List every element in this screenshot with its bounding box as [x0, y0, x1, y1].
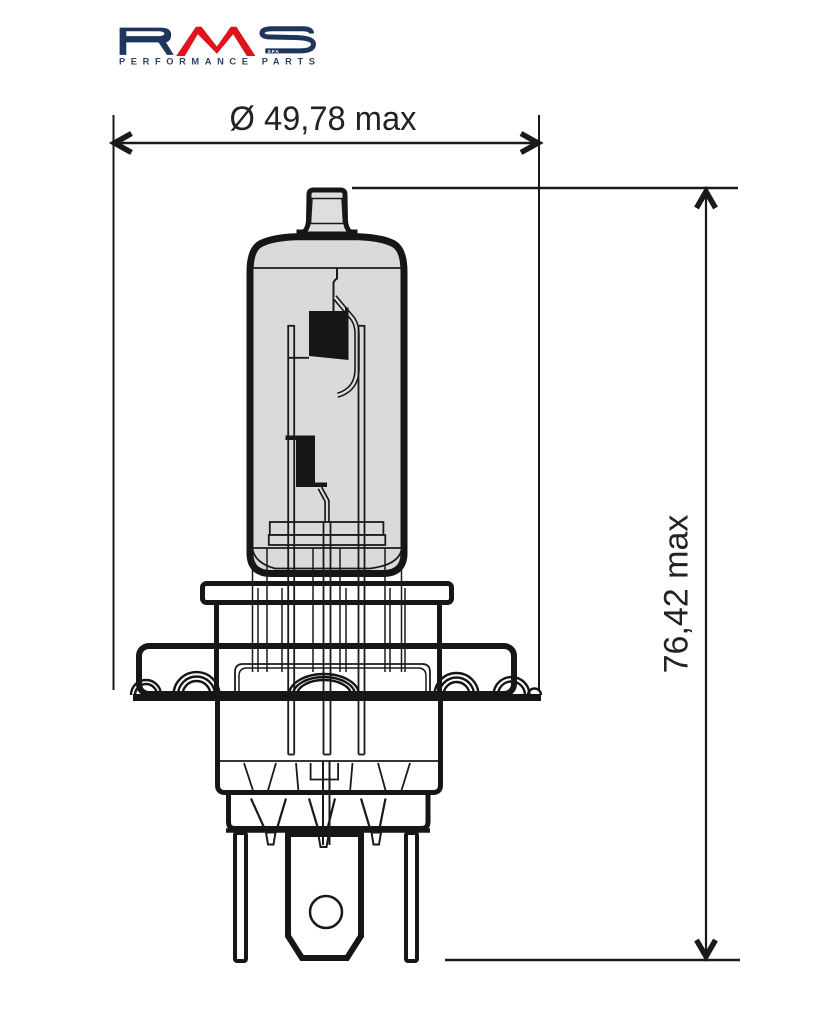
- svg-text:PERFORMANCE PARTS: PERFORMANCE PARTS: [119, 57, 315, 67]
- svg-text:Ø 49,78 max: Ø 49,78 max: [230, 100, 417, 138]
- svg-text:SPA: SPA: [268, 49, 280, 55]
- svg-text:76,42 max: 76,42 max: [658, 515, 696, 674]
